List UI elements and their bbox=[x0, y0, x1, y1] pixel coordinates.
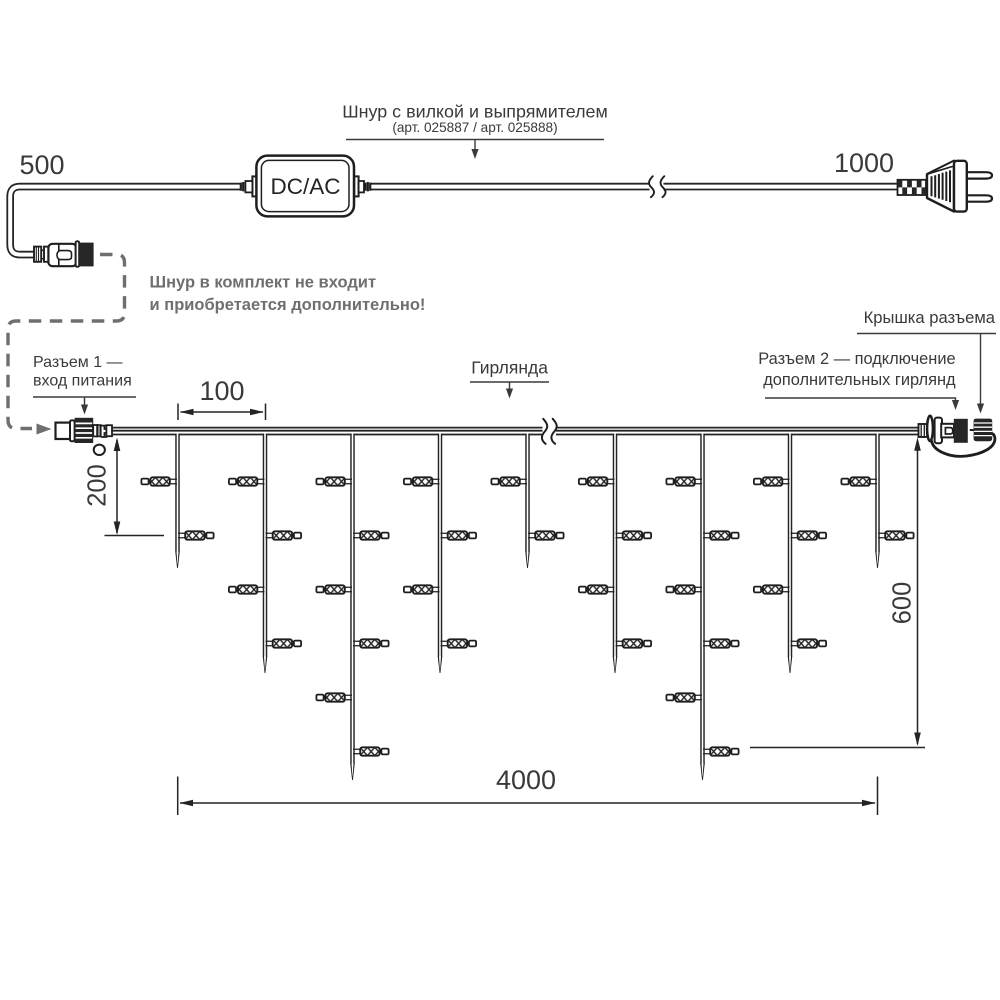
svg-text:дополнительных гирлянд: дополнительных гирлянд bbox=[763, 371, 956, 389]
svg-text:Разъем 2 — подключение: Разъем 2 — подключение bbox=[758, 350, 955, 368]
svg-text:Шнур с вилкой и выпрямителем: Шнур с вилкой и выпрямителем bbox=[342, 102, 608, 122]
svg-text:DC/AC: DC/AC bbox=[270, 174, 340, 199]
svg-text:100: 100 bbox=[199, 376, 244, 406]
svg-text:4000: 4000 bbox=[496, 765, 556, 795]
svg-text:Гирлянда: Гирлянда bbox=[471, 358, 548, 378]
svg-text:Разъем 1 —: Разъем 1 — bbox=[33, 354, 123, 371]
svg-text:(арт. 025887 / арт. 025888): (арт. 025887 / арт. 025888) bbox=[392, 120, 557, 135]
svg-text:500: 500 bbox=[19, 150, 64, 180]
svg-text:600: 600 bbox=[889, 582, 917, 625]
svg-text:1000: 1000 bbox=[834, 148, 894, 178]
svg-text:вход питания: вход питания bbox=[33, 373, 132, 390]
svg-text:Шнур в комплект не входит: Шнур в комплект не входит bbox=[150, 274, 377, 292]
svg-text:200: 200 bbox=[84, 464, 112, 507]
svg-text:Крышка разъема: Крышка разъема bbox=[864, 308, 996, 327]
svg-text:и приобретается дополнительно!: и приобретается дополнительно! bbox=[150, 296, 426, 314]
